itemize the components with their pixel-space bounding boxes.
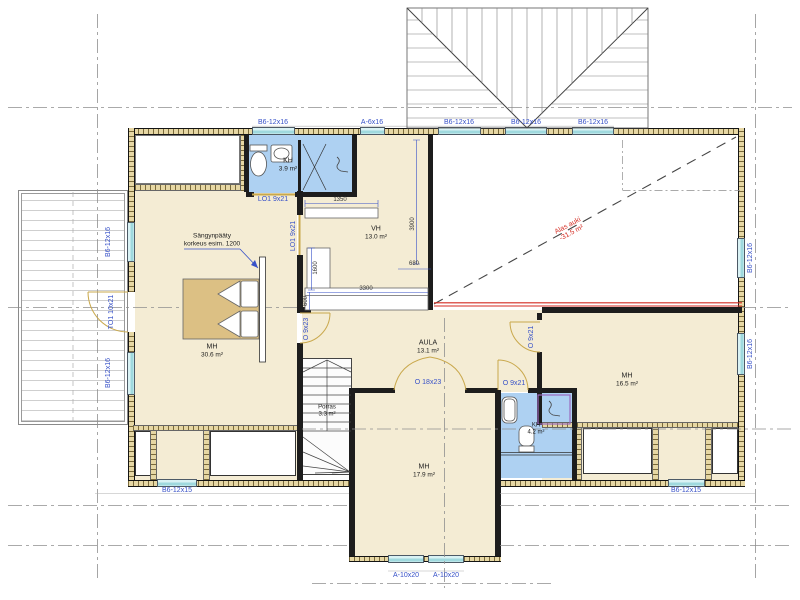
- room-label-kh39: KH 3.9 m²: [279, 157, 297, 173]
- floor-drain-icon-2: [549, 401, 560, 416]
- window-label-south-1: A-10x20: [393, 572, 419, 580]
- window-label-bottom-1: B6-12x15: [162, 487, 192, 495]
- door-label-terrace: TO1 10x21: [108, 295, 116, 330]
- dim-3300: 3300: [359, 286, 372, 292]
- linework-layer: [0, 0, 800, 600]
- door-label-double: O 18x23: [415, 379, 441, 387]
- headboard-annotation: Sängynpääty korkeus esim. 1200: [184, 233, 240, 248]
- annotation-leader: [184, 249, 258, 268]
- dim-1600: 1600: [313, 261, 319, 274]
- room-label-vh: VH 13.0 m²: [365, 225, 387, 241]
- room-label-porras: Porras 3.3 m²: [318, 403, 336, 419]
- room-label-mh179: MH 17.9 m²: [413, 463, 435, 479]
- dim-3900: 3900: [410, 217, 416, 230]
- bed: [183, 257, 266, 362]
- room-label-kh42: KH 4.2 m²: [527, 421, 544, 437]
- bifold-door: [303, 144, 326, 190]
- window-label-top-2: A-6x16: [361, 119, 383, 127]
- bath-partition: [501, 453, 572, 456]
- floor-drain-icon: [337, 157, 348, 172]
- shower-enclosure: [538, 395, 570, 424]
- room-label-mh306: MH 30.6 m²: [201, 343, 223, 359]
- window-label-south-2: A-10x20: [433, 572, 459, 580]
- window-label-top-4: B6-12x16: [511, 119, 541, 127]
- window-label-left-2: B6-12x16: [105, 358, 113, 388]
- door-label-kh2: O 9x21: [503, 380, 526, 388]
- open-to-below-diagonal: [434, 137, 736, 304]
- room-label-mh165: MH 16.5 m²: [616, 372, 638, 388]
- floor-plan: B6-12x16 A-6x16 B6-12x16 B6-12x16 B6-12x…: [0, 0, 800, 600]
- room-label-aula: AULA 13.1 m²: [417, 339, 439, 355]
- window-label-left-1: B6-12x16: [105, 227, 113, 257]
- railing-red: [434, 303, 742, 306]
- roof-plan: [407, 8, 648, 128]
- door-label-mh-left: O 9x23: [303, 318, 311, 341]
- wc-icon: [250, 145, 267, 176]
- window-label-right-2: B6-12x16: [747, 339, 755, 369]
- window-label-top-3: B6-12x16: [444, 119, 474, 127]
- window-label-top-1: B6-12x16: [258, 119, 288, 127]
- window-label-top-5: B6-12x16: [578, 119, 608, 127]
- window-label-bottom-2: B6-12x15: [671, 487, 701, 495]
- door-label-kh-sliding: LO1 9x21: [258, 196, 288, 204]
- dim-600: 600: [303, 296, 309, 306]
- dim-680: 680: [409, 261, 419, 267]
- window-label-right-1: B6-12x16: [747, 243, 755, 273]
- door-label-mh-right: O 9x21: [528, 326, 536, 349]
- door-label-vh-sliding: LO1 9x21: [290, 221, 298, 251]
- dim-1350: 1350: [333, 197, 346, 203]
